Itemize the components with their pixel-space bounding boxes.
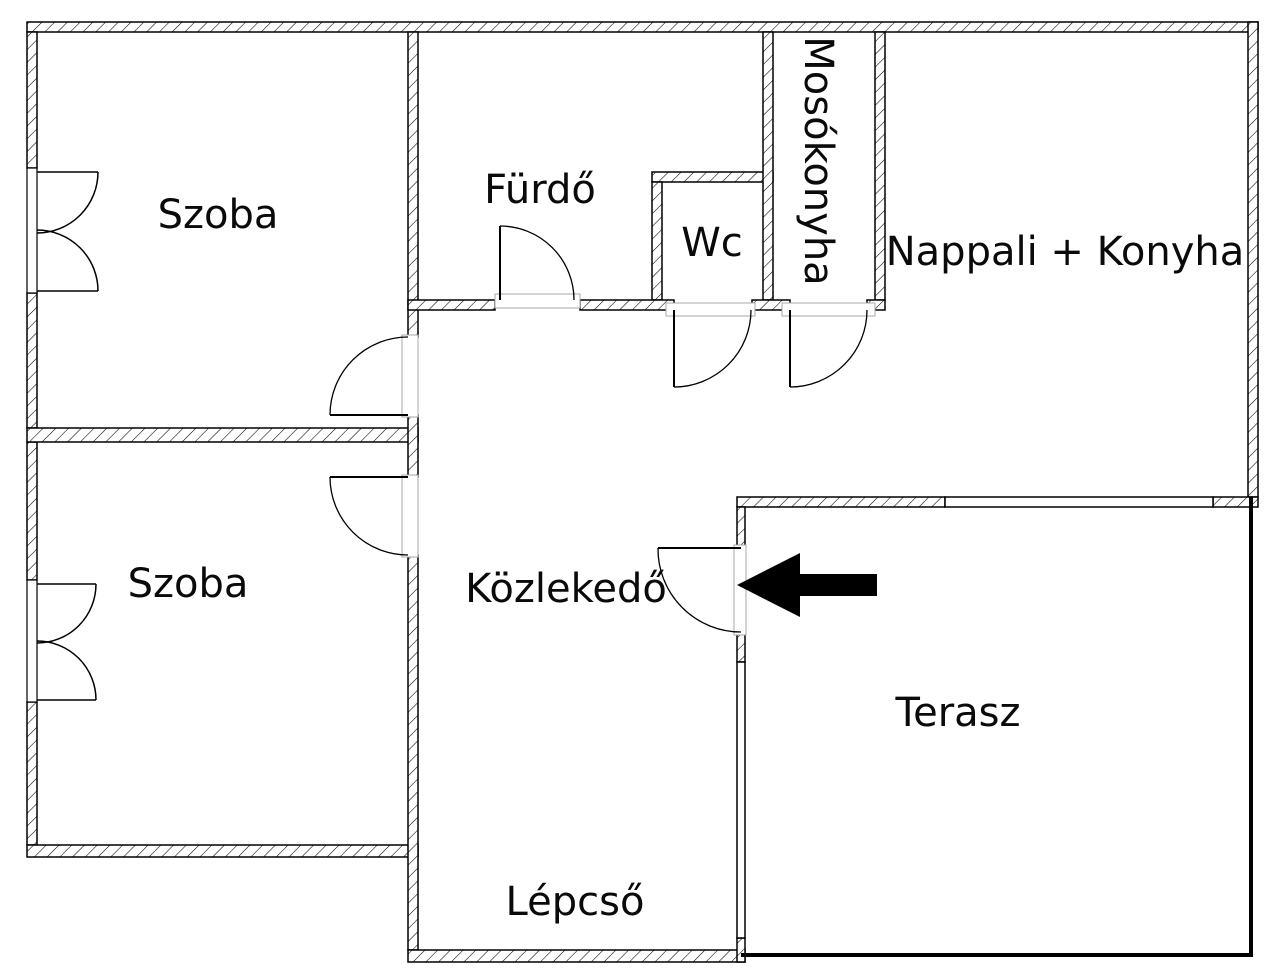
floor-plan: Szoba Fürdő Wc Mosókonyha Nappali + Kony… <box>0 0 1279 975</box>
room-label-furdo: Fürdő <box>484 168 596 212</box>
entrance-arrow-icon <box>737 553 877 617</box>
door-mosokonyha <box>782 303 875 387</box>
door-szoba-top <box>330 335 418 417</box>
room-label-szoba-top: Szoba <box>158 193 279 237</box>
room-label-nappali-konyha: Nappali + Konyha <box>886 230 1245 274</box>
room-label-terasz: Terasz <box>895 691 1020 735</box>
door-szoba-bottom <box>330 475 418 557</box>
window-top-szoba <box>27 168 98 293</box>
door-furdo <box>495 226 580 308</box>
room-label-kozlekedo: Közlekedő <box>465 567 667 611</box>
door-wc <box>666 303 755 387</box>
door-entrance <box>658 545 746 635</box>
nappali-terasz-window <box>945 497 1213 507</box>
room-label-wc: Wc <box>681 221 743 265</box>
window-bottom-szoba <box>27 580 96 702</box>
room-label-szoba-bottom: Szoba <box>128 562 249 606</box>
lepcso-terasz-thin-wall <box>737 662 745 938</box>
room-label-lepcso: Lépcső <box>506 880 645 924</box>
floor-plan-drawing <box>0 0 1279 975</box>
room-label-mosokonyha: Mosókonyha <box>796 36 840 285</box>
